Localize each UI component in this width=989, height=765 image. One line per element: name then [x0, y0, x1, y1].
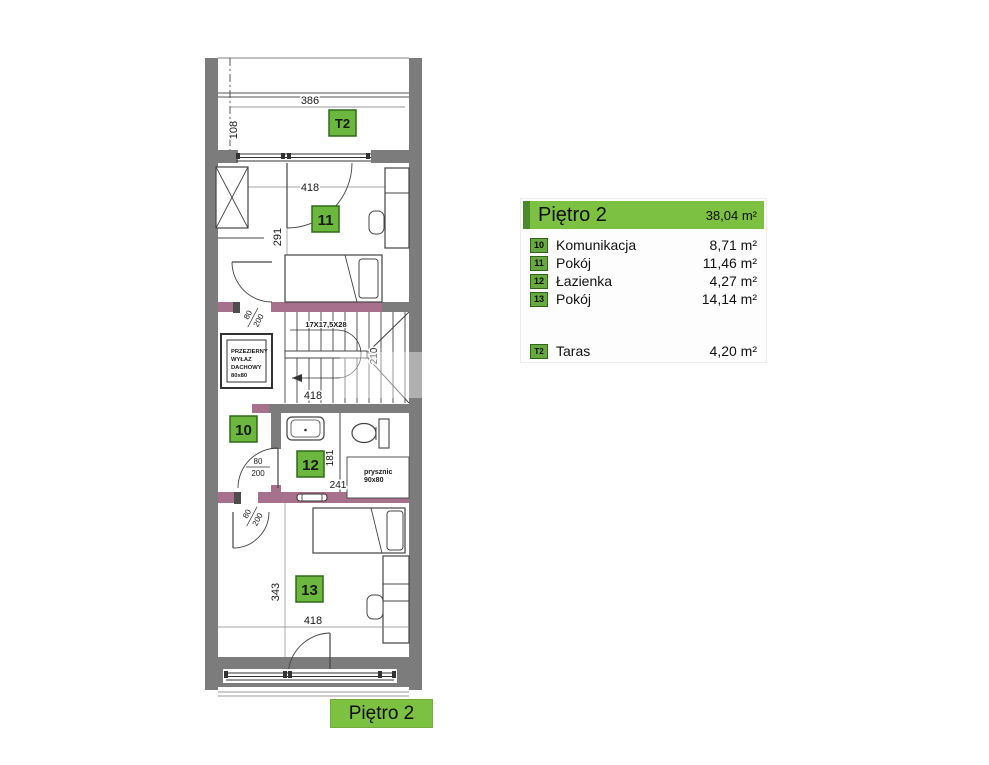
bathroom: 181 prysznic 90x80 241 12 80: [238, 413, 409, 501]
toilet: [352, 419, 389, 448]
room-11: 418 291: [216, 163, 409, 302]
room-badge: 12: [530, 274, 548, 289]
dim-room13-width: 418: [304, 615, 322, 627]
desk-room13: [367, 556, 409, 643]
dim-room13-depth: 343: [270, 583, 282, 601]
svg-text:200: 200: [252, 312, 266, 328]
wardrobe: [216, 167, 264, 238]
svg-text:80: 80: [241, 507, 253, 520]
room-name: Taras: [556, 343, 590, 359]
room-area: 4,20 m²: [710, 343, 757, 359]
legend-row: 13 Pokój 14,14 m²: [530, 290, 757, 308]
legend-header: Piętro 2 38,04 m²: [523, 201, 764, 229]
stairs-steps-label: 17X17,5X28: [305, 320, 346, 329]
dim-bath-depth: 181: [325, 449, 336, 466]
dim-room11-depth: 291: [272, 228, 284, 246]
room-badge: 13: [530, 292, 548, 307]
legend-row: 11 Pokój 11,46 m²: [530, 254, 757, 272]
room-area: 4,27 m²: [710, 273, 757, 289]
legend-row: 12 Łazienka 4,27 m²: [530, 272, 757, 290]
room-area: 8,71 m²: [710, 237, 757, 253]
badge-room12: 12: [297, 451, 324, 477]
room-badge: 11: [530, 256, 548, 271]
balcony-window: [236, 151, 371, 162]
svg-text:80: 80: [254, 457, 263, 466]
bed-room11: [285, 255, 382, 302]
dim-bath-width: 241: [330, 480, 347, 491]
legend-row-terrace: T2 Taras 4,20 m²: [530, 342, 757, 360]
room-name: Komunikacja: [556, 237, 636, 253]
terrace: 386 108: [218, 58, 409, 162]
svg-text:11: 11: [318, 212, 334, 229]
svg-text:prysznic: prysznic: [364, 469, 393, 476]
svg-text:13: 13: [301, 582, 318, 599]
corridor-door: [232, 262, 272, 302]
roof-hatch: PRZEZIERNY WYŁAZ DACHOWY 80x80: [221, 334, 272, 388]
desk-room11: [369, 168, 409, 248]
shower: prysznic 90x80: [347, 457, 409, 498]
svg-text:10: 10: [235, 422, 252, 439]
threshold: [297, 494, 327, 501]
svg-text:DACHOWY: DACHOWY: [231, 365, 262, 371]
svg-text:WYŁAZ: WYŁAZ: [231, 357, 252, 363]
badge-terrace: T2: [329, 110, 356, 136]
svg-text:200: 200: [251, 469, 265, 478]
svg-text:80x80: 80x80: [231, 373, 247, 379]
legend-accent-bar: [523, 201, 530, 229]
room-area: 11,46 m²: [703, 255, 757, 271]
room-badge: 10: [530, 238, 548, 253]
floor-label: Piętro 2: [330, 699, 433, 728]
sink: [287, 417, 324, 440]
door-label-3: 80 200: [238, 502, 267, 531]
room-name: Pokój: [556, 291, 591, 307]
chair-room11: [369, 211, 384, 234]
svg-text:T2: T2: [335, 116, 350, 131]
floor-plan-page: 386 108 418 291: [0, 0, 989, 765]
legend-rows: 10 Komunikacja 8,71 m² 11 Pokój 11,46 m²…: [521, 229, 766, 360]
room-13: 80 200 343 418 13: [218, 502, 409, 676]
bed-room13: [313, 508, 405, 553]
dim-room11-width: 418: [301, 182, 319, 194]
bottom-window: [218, 669, 409, 696]
door-label-1: 80 200: [239, 303, 268, 332]
room-name: Pokój: [556, 255, 591, 271]
bathroom-door: [238, 448, 278, 488]
room-badge: T2: [530, 344, 548, 359]
badge-room10: 10: [230, 416, 257, 442]
watermark: [340, 352, 468, 398]
svg-text:PRZEZIERNY: PRZEZIERNY: [231, 349, 268, 355]
room-area: 14,14 m²: [702, 291, 757, 307]
dim-terrace-depth: 108: [228, 121, 240, 139]
badge-room11: 11: [312, 206, 339, 232]
legend-total-area: 38,04 m²: [706, 208, 764, 223]
svg-text:90x80: 90x80: [364, 477, 384, 484]
room-name: Łazienka: [556, 273, 612, 289]
svg-text:200: 200: [251, 511, 265, 527]
legend-panel: Piętro 2 38,04 m² 10 Komunikacja 8,71 m²…: [520, 198, 767, 363]
svg-text:12: 12: [302, 457, 319, 474]
svg-text:80: 80: [242, 308, 254, 321]
floor-plan: 386 108 418 291: [0, 0, 989, 765]
dim-stairs-width: 418: [304, 390, 322, 402]
badge-room13: 13: [296, 576, 323, 602]
legend-title-bar: Piętro 2 38,04 m²: [530, 201, 764, 229]
legend-title: Piętro 2: [530, 204, 607, 227]
legend-row: 10 Komunikacja 8,71 m²: [530, 236, 757, 254]
chair-room13: [367, 595, 383, 619]
dim-terrace-width: 386: [301, 95, 319, 107]
